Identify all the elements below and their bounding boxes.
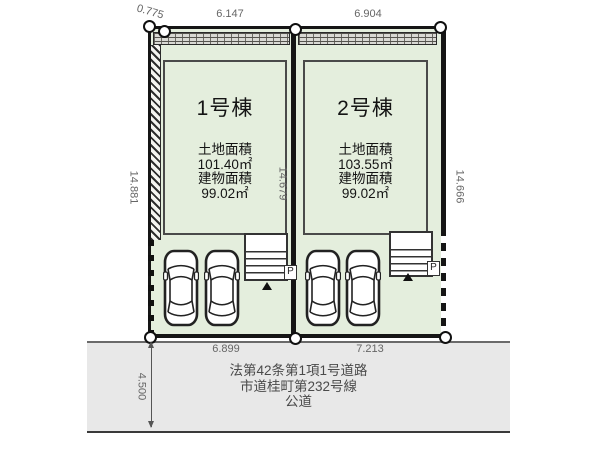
building-2-areas: 土地面積 103.55㎡ 建物面積 99.02㎡: [305, 143, 426, 201]
building-2-land-area-label: 土地面積: [305, 143, 426, 158]
dimension-arrow-down-icon: [148, 421, 154, 428]
survey-point-icon: [143, 20, 156, 33]
building-2-land-area-value: 103.55㎡: [305, 158, 426, 173]
survey-point-icon: [289, 332, 302, 345]
building-1-building-area-label: 建物面積: [165, 172, 285, 187]
dimension-right-boundary: 14.666: [453, 165, 466, 209]
car-icon: [204, 249, 240, 327]
building-2-outline: 2号棟 土地面積 103.55㎡ 建物面積 99.02㎡: [303, 60, 428, 235]
entrance-triangle-icon-lot1: [262, 282, 272, 290]
building-1-name: 1号棟: [165, 92, 285, 122]
parking-mark-lot2: P: [427, 261, 440, 276]
parking-mark-lot1: P: [284, 265, 297, 280]
dimension-road-width: 4.500: [135, 365, 148, 409]
entrance-triangle-icon-lot2: [403, 273, 413, 281]
building-1-outline: 1号棟 土地面積 101.40㎡ 建物面積 99.02㎡: [163, 60, 287, 235]
west-boundary-hatch: [151, 45, 161, 240]
survey-point-icon: [158, 25, 171, 38]
survey-point-icon: [289, 23, 302, 36]
dimension-left-boundary: 14.881: [127, 166, 140, 210]
dimension-top-lot2: 6.904: [346, 8, 390, 21]
dimension-bottom-lot2: 7.213: [348, 343, 392, 356]
building-1-building-area-value: 99.02㎡: [165, 187, 285, 202]
survey-point-icon: [434, 21, 447, 34]
dimension-top-lot1: 6.147: [208, 8, 252, 21]
stair-treads-icon: [391, 249, 431, 275]
building-1-land-area-label: 土地面積: [165, 143, 285, 158]
car-icon: [163, 249, 199, 327]
lot-divider-line: [291, 26, 296, 338]
entry-steps-lot1: [244, 233, 288, 281]
west-block-wall-ticks: [148, 240, 154, 334]
north-wall-hatch-lot2: [298, 32, 437, 45]
road-width-dimension-line: [151, 343, 152, 427]
building-2-building-area-label: 建物面積: [305, 172, 426, 187]
survey-point-icon: [439, 331, 452, 344]
car-icon: [305, 249, 341, 327]
building-1-land-area-value: 101.40㎡: [165, 158, 285, 173]
building-1-areas: 土地面積 101.40㎡ 建物面積 99.02㎡: [165, 143, 285, 201]
car-icon: [345, 249, 381, 327]
dimension-bottom-lot1: 6.899: [204, 343, 248, 356]
building-2-name: 2号棟: [305, 92, 426, 122]
dimension-center-boundary: 14.679: [276, 162, 289, 206]
east-block-wall-dashes: [441, 228, 446, 334]
dimension-arrow-up-icon: [148, 341, 154, 348]
north-wall-hatch-lot1: [153, 32, 290, 45]
site-plan-diagram: 法第42条第1項1号道路 市道桂町第232号線 公道 1号棟 土地面積 101.…: [0, 0, 600, 449]
stair-treads-icon: [246, 251, 286, 279]
building-2-building-area-value: 99.02㎡: [305, 187, 426, 202]
